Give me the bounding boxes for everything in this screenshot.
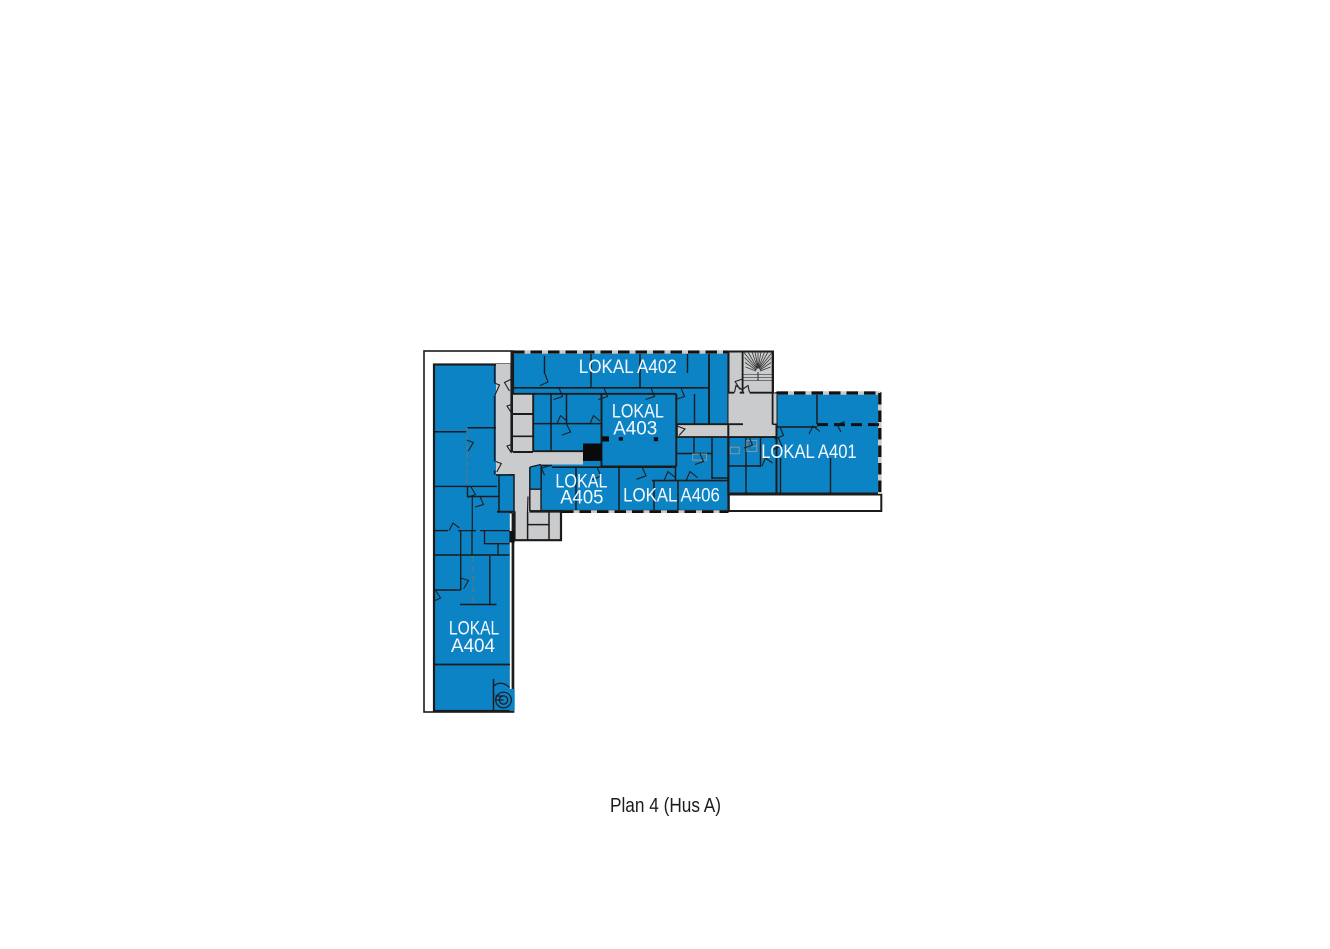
svg-text:LOKAL A401: LOKAL A401	[761, 442, 857, 463]
svg-text:Plan 4 (Hus A): Plan 4 (Hus A)	[610, 795, 721, 817]
svg-text:A404: A404	[451, 636, 495, 657]
svg-text:LOKAL A406: LOKAL A406	[623, 486, 720, 507]
svg-text:A405: A405	[560, 487, 603, 508]
svg-text:LOKAL A402: LOKAL A402	[579, 357, 677, 378]
svg-text:A403: A403	[613, 418, 657, 439]
